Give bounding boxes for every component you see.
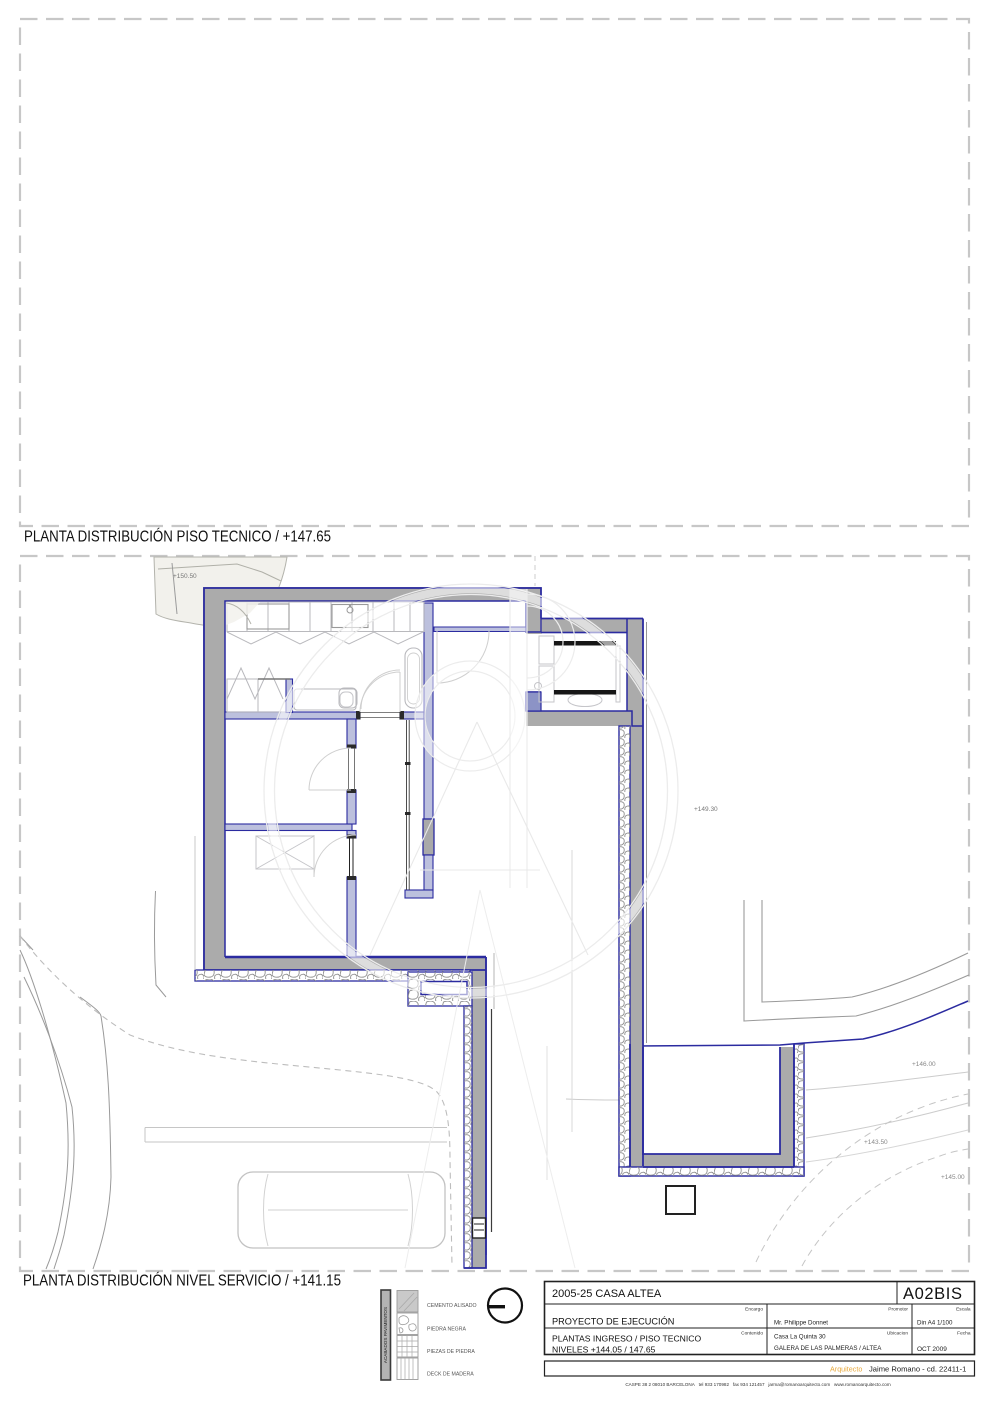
svg-text:2005-25 CASA ALTEA: 2005-25 CASA ALTEA [552, 1288, 662, 1300]
svg-text:OCT 2009: OCT 2009 [917, 1346, 947, 1353]
svg-text:Encargo: Encargo [745, 1307, 763, 1313]
svg-text:DECK DE MADERA: DECK DE MADERA [427, 1372, 474, 1378]
svg-text:Mr. Philippe Donnet: Mr. Philippe Donnet [774, 1320, 828, 1327]
svg-text:+149.30: +149.30 [694, 806, 718, 813]
svg-text:+143.50: +143.50 [864, 1139, 888, 1146]
svg-text:NIVELES +144.05 / 147.65: NIVELES +144.05 / 147.65 [552, 1345, 656, 1355]
svg-text:PROYECTO DE EJECUCIÓN: PROYECTO DE EJECUCIÓN [552, 1317, 674, 1327]
svg-text:Promotor: Promotor [888, 1307, 908, 1313]
svg-text:CEMENTO ALISADO: CEMENTO ALISADO [427, 1303, 477, 1309]
svg-text:PLANTA DISTRIBUCIÓN NIVEL SERV: PLANTA DISTRIBUCIÓN NIVEL SERVICIO / +14… [23, 1271, 341, 1290]
svg-text:PLANTA DISTRIBUCIÓN PISO TECNI: PLANTA DISTRIBUCIÓN PISO TECNICO / +147.… [24, 527, 331, 546]
svg-text:+150.50: +150.50 [173, 573, 197, 580]
svg-text:Fecha: Fecha [957, 1331, 971, 1337]
svg-text:Arquitecto: Arquitecto [830, 1365, 862, 1374]
svg-text:+146.00: +146.00 [912, 1061, 936, 1068]
svg-text:GALERA DE LAS PALMERAS / ALTEA: GALERA DE LAS PALMERAS / ALTEA [774, 1345, 882, 1352]
svg-text:Casa La Quinta 30: Casa La Quinta 30 [774, 1334, 826, 1341]
svg-text:ACABADOS PAVIMENTOS: ACABADOS PAVIMENTOS [383, 1307, 388, 1363]
svg-text:Ubicacion: Ubicacion [887, 1331, 908, 1337]
svg-text:PIEZAS DE PIEDRA: PIEZAS DE PIEDRA [427, 1349, 475, 1355]
svg-text:Jaime Romano - cd. 22411-1: Jaime Romano - cd. 22411-1 [869, 1365, 966, 1374]
svg-text:Din A4 1/100: Din A4 1/100 [917, 1320, 953, 1327]
svg-text:Contenido: Contenido [741, 1331, 763, 1337]
svg-text:A02BIS: A02BIS [903, 1285, 963, 1303]
svg-text:+145.00: +145.00 [941, 1174, 965, 1181]
svg-text:Escala: Escala [956, 1307, 971, 1313]
svg-text:PLANTAS INGRESO / PISO TECNICO: PLANTAS INGRESO / PISO TECNICO [552, 1334, 701, 1344]
svg-text:CASPE 38 2 08010 BARCELONA: CASPE 38 2 08010 BARCELONA tel 933 17098… [625, 1382, 891, 1387]
svg-text:PIEDRA NEGRA: PIEDRA NEGRA [427, 1327, 466, 1333]
